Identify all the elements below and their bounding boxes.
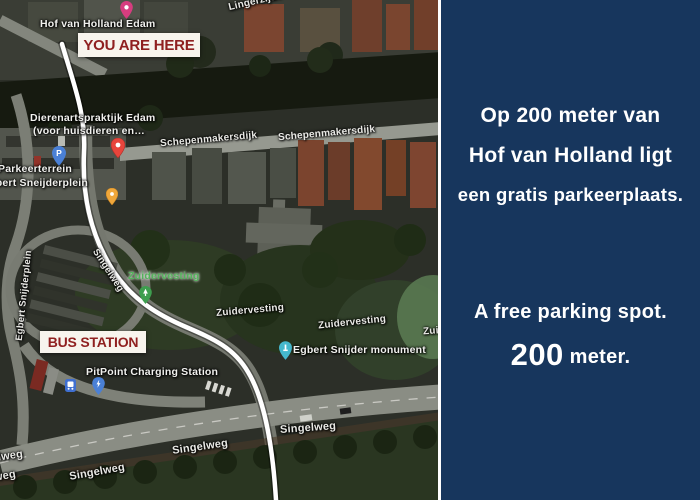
poi-label-charging: PitPoint Charging Station [86, 366, 218, 378]
poi-label-vet-line1: Dierenartspraktijk Edam [30, 112, 148, 125]
poi-label-parking: Parkeerterrein Egbert Sneijderplein [0, 163, 110, 190]
info-panel: Op 200 meter van Hof van Holland ligt ee… [441, 0, 700, 500]
poi-label-monument: Egbert Snijder monument [293, 344, 426, 356]
orange-pin-icon [106, 188, 118, 205]
distance-number: 200 [511, 337, 564, 372]
poi-label-vet: Dierenartspraktijk Edam (voor huisdieren… [30, 112, 148, 138]
monument-pin-icon [279, 341, 292, 360]
poi-label-parking-line2: Egbert Sneijderplein [0, 177, 110, 191]
english-line-2: 200 meter. [441, 337, 700, 373]
dutch-line-1: Op 200 meter van [441, 104, 700, 128]
bus-stop-icon [65, 379, 76, 392]
english-line-1: A free parking spot. [441, 301, 700, 324]
poi-label-parking-line1: Parkeerterrein [0, 163, 110, 177]
svg-text:P: P [56, 148, 62, 158]
dutch-line-3: een gratis parkeerplaats. [441, 184, 700, 206]
poi-label-park: Zuidervesting [128, 270, 199, 282]
bus-station-banner: BUS STATION [40, 331, 146, 353]
distance-unit: meter. [564, 346, 631, 368]
parking-flyer: P YOU ARE HERE BUS STATION Hof van Holla… [0, 0, 700, 500]
dutch-text-block: Op 200 meter van Hof van Holland ligt ee… [441, 104, 700, 206]
satellite-imagery [0, 0, 441, 500]
tree-pin-icon [139, 286, 152, 304]
you-are-here-banner: YOU ARE HERE [78, 33, 200, 57]
red-pin-icon [111, 138, 125, 158]
poi-label-vet-line2: (voor huisdieren en… [30, 125, 148, 138]
dutch-line-2: Hof van Holland ligt [441, 144, 700, 168]
english-text-block: A free parking spot. 200 meter. [441, 301, 700, 373]
hotel-pin-icon [120, 1, 133, 19]
map-panel: P YOU ARE HERE BUS STATION Hof van Holla… [0, 0, 441, 500]
charging-pin-icon [92, 377, 105, 395]
poi-label-hotel: Hof van Holland Edam [40, 18, 150, 30]
